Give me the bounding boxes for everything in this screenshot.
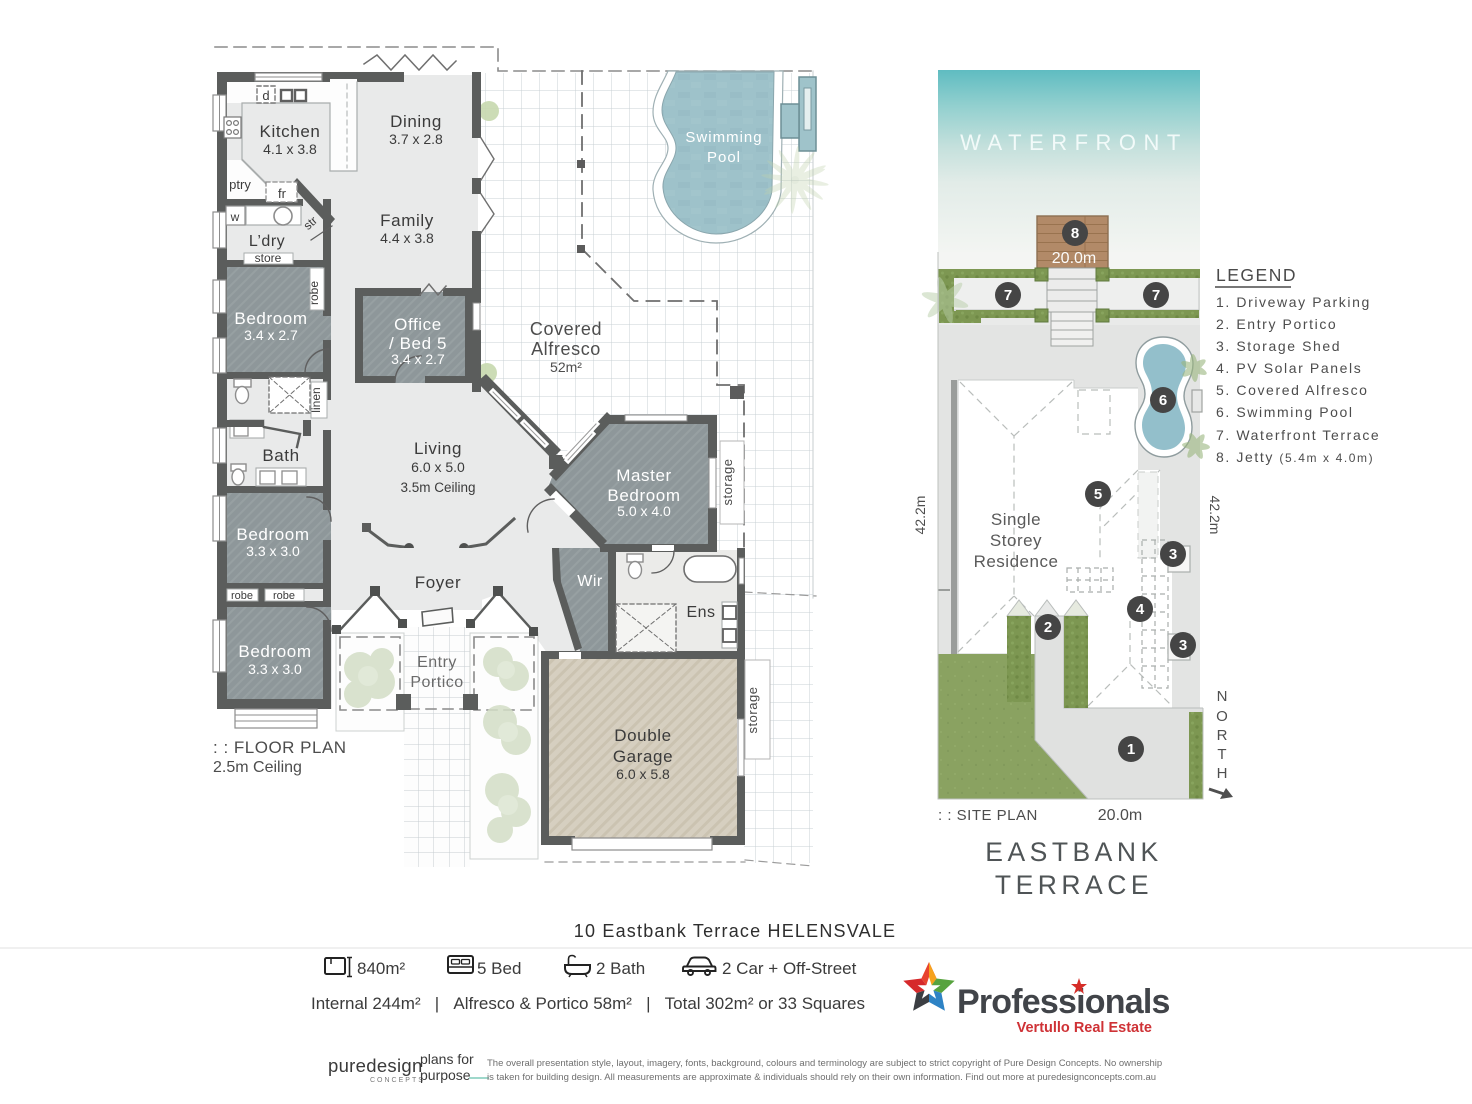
svg-text:Office: Office	[394, 315, 442, 334]
svg-text:: : SITE PLAN: : : SITE PLAN	[938, 807, 1038, 824]
svg-text:TERRACE: TERRACE	[995, 870, 1153, 900]
svg-text:Storey: Storey	[990, 531, 1042, 550]
svg-text:3.7 x 2.8: 3.7 x 2.8	[389, 131, 443, 147]
svg-text:6. Swimming Pool: 6. Swimming Pool	[1216, 404, 1354, 420]
svg-text:8: 8	[1071, 225, 1079, 242]
svg-text:3.5m Ceiling: 3.5m Ceiling	[400, 480, 475, 495]
svg-text:Entry: Entry	[417, 654, 457, 671]
svg-text:2 Car + Off-Street: 2 Car + Off-Street	[722, 959, 857, 978]
svg-text:EASTBANK: EASTBANK	[985, 837, 1162, 867]
svg-text:Bedroom: Bedroom	[234, 309, 307, 328]
svg-text:plans for: plans for	[420, 1051, 474, 1067]
svg-text:42.2m: 42.2m	[912, 496, 928, 535]
svg-text:store: store	[255, 251, 282, 265]
svg-text:Family: Family	[380, 211, 434, 230]
svg-text:20.0m: 20.0m	[1098, 807, 1142, 824]
svg-text:Ens: Ens	[686, 604, 715, 621]
svg-text:Bedroom: Bedroom	[238, 642, 311, 661]
svg-text:is taken for building design.: is taken for building design. All measur…	[487, 1072, 1156, 1083]
svg-text:L’dry: L’dry	[249, 233, 285, 250]
svg-text:storage: storage	[745, 687, 760, 734]
svg-text:N: N	[1217, 688, 1228, 705]
svg-text:Garage: Garage	[613, 747, 673, 766]
svg-text:4. PV Solar Panels: 4. PV Solar Panels	[1216, 360, 1362, 376]
svg-text:5: 5	[1094, 486, 1102, 503]
svg-text:2 Bath: 2 Bath	[596, 959, 645, 978]
svg-text:Kitchen: Kitchen	[260, 122, 321, 141]
svg-text:Residence: Residence	[974, 552, 1059, 571]
svg-text:Swimming: Swimming	[685, 129, 762, 146]
svg-text:puredesign: puredesign	[328, 1055, 423, 1076]
svg-text:2.5m Ceiling: 2.5m Ceiling	[213, 759, 302, 776]
svg-text:Vertullo Real Estate: Vertullo Real Estate	[1017, 1020, 1152, 1036]
svg-text:WATERFRONT: WATERFRONT	[960, 130, 1188, 155]
svg-text:Single: Single	[991, 510, 1041, 529]
svg-text:52m²: 52m²	[550, 359, 582, 375]
svg-text:Master: Master	[616, 466, 672, 485]
svg-text:7: 7	[1152, 287, 1160, 304]
svg-text:10 Eastbank Terrace HELENSVALE: 10 Eastbank Terrace HELENSVALE	[574, 921, 897, 941]
svg-text:: : FLOOR PLAN: : : FLOOR PLAN	[213, 738, 347, 757]
svg-text:The overall presentation style: The overall presentation style, layout, …	[487, 1058, 1162, 1069]
svg-text:Foyer: Foyer	[415, 573, 461, 592]
svg-text:3.4 x 2.7: 3.4 x 2.7	[244, 327, 298, 343]
svg-text:w: w	[230, 210, 240, 224]
svg-text:8. Jetty (5.4m x 4.0m): 8. Jetty (5.4m x 4.0m)	[1216, 449, 1374, 465]
svg-text:Portico: Portico	[410, 674, 463, 691]
svg-text:4: 4	[1136, 601, 1145, 618]
svg-text:1. Driveway Parking: 1. Driveway Parking	[1216, 294, 1371, 310]
svg-text:3.3 x 3.0: 3.3 x 3.0	[246, 543, 300, 559]
svg-text:Wir: Wir	[577, 573, 603, 590]
svg-text:robe: robe	[231, 590, 253, 602]
svg-text:Internal 244m² | Alfresco: Internal 244m² | Alfresco & Portico 58m²…	[311, 994, 865, 1013]
svg-text:5 Bed: 5 Bed	[477, 959, 521, 978]
svg-text:2. Entry Portico: 2. Entry Portico	[1216, 316, 1337, 332]
svg-text:Dining: Dining	[390, 112, 442, 131]
svg-text:6: 6	[1159, 392, 1167, 409]
svg-text:3.4 x 2.7: 3.4 x 2.7	[391, 351, 445, 367]
svg-text:840m²: 840m²	[357, 959, 406, 978]
svg-text:6.0 x 5.0: 6.0 x 5.0	[411, 459, 465, 475]
svg-text:H: H	[1217, 765, 1228, 782]
svg-text:R: R	[1217, 727, 1228, 744]
svg-text:Professionals: Professionals	[957, 983, 1170, 1021]
svg-text:Bath: Bath	[262, 446, 299, 465]
svg-text:ptry: ptry	[229, 177, 251, 192]
svg-text:4.4 x 3.8: 4.4 x 3.8	[380, 230, 434, 246]
svg-text:1: 1	[1127, 741, 1135, 758]
svg-text:7. Waterfront Terrace: 7. Waterfront Terrace	[1216, 427, 1380, 443]
svg-text:5.0 x 4.0: 5.0 x 4.0	[617, 503, 671, 519]
svg-text:7: 7	[1004, 287, 1012, 304]
svg-text:Double: Double	[614, 726, 671, 745]
svg-text:linen: linen	[309, 387, 323, 412]
svg-text:storage: storage	[720, 459, 735, 506]
svg-text:3: 3	[1179, 637, 1187, 654]
svg-text:CONCEPTS: CONCEPTS	[370, 1077, 425, 1084]
svg-text:6.0 x 5.8: 6.0 x 5.8	[616, 766, 670, 782]
svg-text:Covered: Covered	[530, 319, 602, 339]
svg-text:2: 2	[1044, 619, 1052, 636]
svg-text:d: d	[262, 88, 269, 103]
svg-text:5. Covered Alfresco: 5. Covered Alfresco	[1216, 382, 1369, 398]
svg-text:3.3 x 3.0: 3.3 x 3.0	[248, 661, 302, 677]
svg-text:robe: robe	[307, 281, 321, 305]
svg-text:purpose: purpose	[420, 1067, 471, 1083]
svg-text:Living: Living	[414, 439, 462, 458]
svg-text:robe: robe	[273, 590, 295, 602]
svg-text:3: 3	[1169, 546, 1177, 563]
svg-text:O: O	[1216, 708, 1228, 725]
svg-text:Pool: Pool	[707, 149, 741, 166]
svg-text:T: T	[1217, 746, 1226, 763]
svg-text:fr: fr	[278, 186, 287, 201]
svg-text:4.1 x 3.8: 4.1 x 3.8	[263, 141, 317, 157]
svg-text:20.0m: 20.0m	[1052, 250, 1096, 267]
svg-text:42.2m: 42.2m	[1207, 496, 1223, 535]
svg-text:LEGEND: LEGEND	[1216, 265, 1297, 285]
svg-text:3. Storage Shed: 3. Storage Shed	[1216, 338, 1341, 354]
svg-text:Bedroom: Bedroom	[236, 525, 309, 544]
svg-text:Alfresco: Alfresco	[531, 339, 601, 359]
